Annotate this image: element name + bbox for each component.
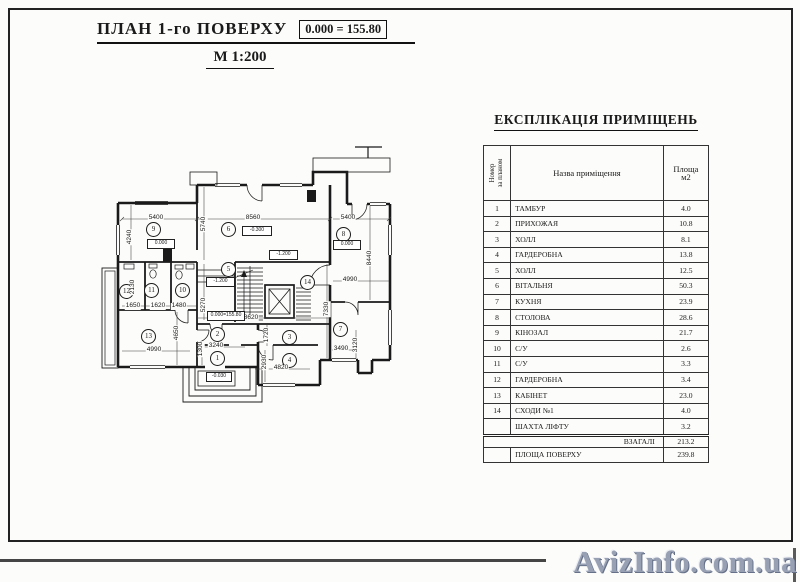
floor-area-label: ПЛОЩА ПОВЕРХУ xyxy=(511,447,664,463)
dim-8620: 8620 xyxy=(243,315,259,322)
table-row: 5ХОЛЛ12.5 xyxy=(484,263,709,279)
level-mark-1200-room5: -1.200 xyxy=(206,277,235,287)
total-label: ВЗАГАЛІ xyxy=(484,435,664,447)
dim-4820: 4820 xyxy=(273,365,289,372)
dim-2930: 2930 xyxy=(262,354,269,370)
dim-3120: 3120 xyxy=(353,337,360,353)
dim-4990-left: 4990 xyxy=(146,347,162,354)
dim-2130: 2130 xyxy=(130,279,137,295)
room-circle-3: 3 xyxy=(282,330,297,345)
table-row: 2ПРИХОЖАЯ10.8 xyxy=(484,216,709,232)
dim-1480: 1480 xyxy=(171,303,187,310)
dim-4650: 4650 xyxy=(174,325,181,341)
col-header-name: Назва приміщення xyxy=(511,146,664,201)
room-circle-6: 6 xyxy=(221,222,236,237)
dim-8440: 8440 xyxy=(367,250,374,266)
level-mark-0000-room8: 0.000 xyxy=(333,240,361,250)
dim-1650: 1650 xyxy=(125,303,141,310)
room-circle-14: 14 xyxy=(300,275,315,290)
room-circle-7: 7 xyxy=(333,322,348,337)
dim-1720: 1720 xyxy=(264,327,271,343)
dim-5400-right: 5400 xyxy=(340,215,356,222)
table-row: ШАХТА ЛІФТУ3.2 xyxy=(484,419,709,436)
total-area: 213.2 xyxy=(663,435,708,447)
table-row: 3ХОЛЛ8.1 xyxy=(484,232,709,248)
table-row: 7КУХНЯ23.9 xyxy=(484,294,709,310)
table-row: 11С/У3.3 xyxy=(484,356,709,372)
dim-4990-right: 4990 xyxy=(342,277,358,284)
dim-3490: 3490 xyxy=(333,346,349,353)
room-circle-9: 9 xyxy=(146,222,161,237)
level-mark-0000-room9: 0.000 xyxy=(147,239,175,249)
col-header-number: Номер за планом xyxy=(489,149,505,197)
table-header-row: Номер за планом Назва приміщення Площа м… xyxy=(484,146,709,201)
level-mark-1200-stairs: -1.200 xyxy=(269,250,298,260)
col-header-area: Площа м2 xyxy=(663,146,708,201)
level-mark-0300-room6: -0.300 xyxy=(242,226,272,236)
table-row: 10С/У2.6 xyxy=(484,341,709,357)
level-mark-porch: -0.030 xyxy=(206,372,232,382)
explication-table: Номер за планом Назва приміщення Площа м… xyxy=(483,145,709,463)
dim-7330: 7330 xyxy=(324,301,331,317)
scanned-floorplan-page: ПЛАН 1-го ПОВЕРХУ 0.000 = 155.80 М 1:200 xyxy=(0,0,800,582)
scan-shadow-line xyxy=(0,559,546,562)
table-floor-area-row: ПЛОЩА ПОВЕРХУ 239.8 xyxy=(484,447,709,463)
table-row: 13КАБІНЕТ23.0 xyxy=(484,388,709,404)
table-total-row: ВЗАГАЛІ 213.2 xyxy=(484,435,709,447)
dim-8560: 8560 xyxy=(245,215,261,222)
room-circle-2: 2 xyxy=(210,327,225,342)
table-title: ЕКСПЛІКАЦІЯ ПРИМІЩЕНЬ xyxy=(494,112,697,131)
table-row: 6ВІТАЛЬНЯ50.3 xyxy=(484,278,709,294)
table-row: 8СТОЛОВА28.6 xyxy=(484,310,709,326)
watermark-text: AvizInfo.com.ua xyxy=(573,544,797,580)
table-row: 14СХОДИ №14.0 xyxy=(484,403,709,419)
bathroom-fixtures xyxy=(124,264,194,279)
roof-vent-mark xyxy=(355,147,382,158)
floor-area-value: 239.8 xyxy=(663,447,708,463)
table-row: 9КІНОЗАЛ21.7 xyxy=(484,325,709,341)
room-circle-10: 10 xyxy=(175,283,190,298)
room-circle-11: 11 xyxy=(144,283,159,298)
dim-1300: 1300 xyxy=(198,341,205,357)
table-row: 12ГАРДЕРОБНА3.4 xyxy=(484,372,709,388)
room-circle-1: 1 xyxy=(210,351,225,366)
dim-5400-left: 5400 xyxy=(148,215,164,222)
room-circle-13: 13 xyxy=(141,329,156,344)
dim-4240: 4240 xyxy=(127,229,134,245)
explication-block: ЕКСПЛІКАЦІЯ ПРИМІЩЕНЬ Номер за планом На… xyxy=(483,112,709,463)
dim-1620: 1620 xyxy=(150,303,166,310)
table-row: 1ТАМБУР4.0 xyxy=(484,201,709,217)
dim-3240: 3240 xyxy=(208,343,224,350)
level-mark-absolute: 0.000=155.80 xyxy=(207,311,245,321)
dim-5740: 5740 xyxy=(201,216,208,232)
table-row: 4ГАРДЕРОБНА13.8 xyxy=(484,247,709,263)
room-circle-5: 5 xyxy=(221,262,236,277)
